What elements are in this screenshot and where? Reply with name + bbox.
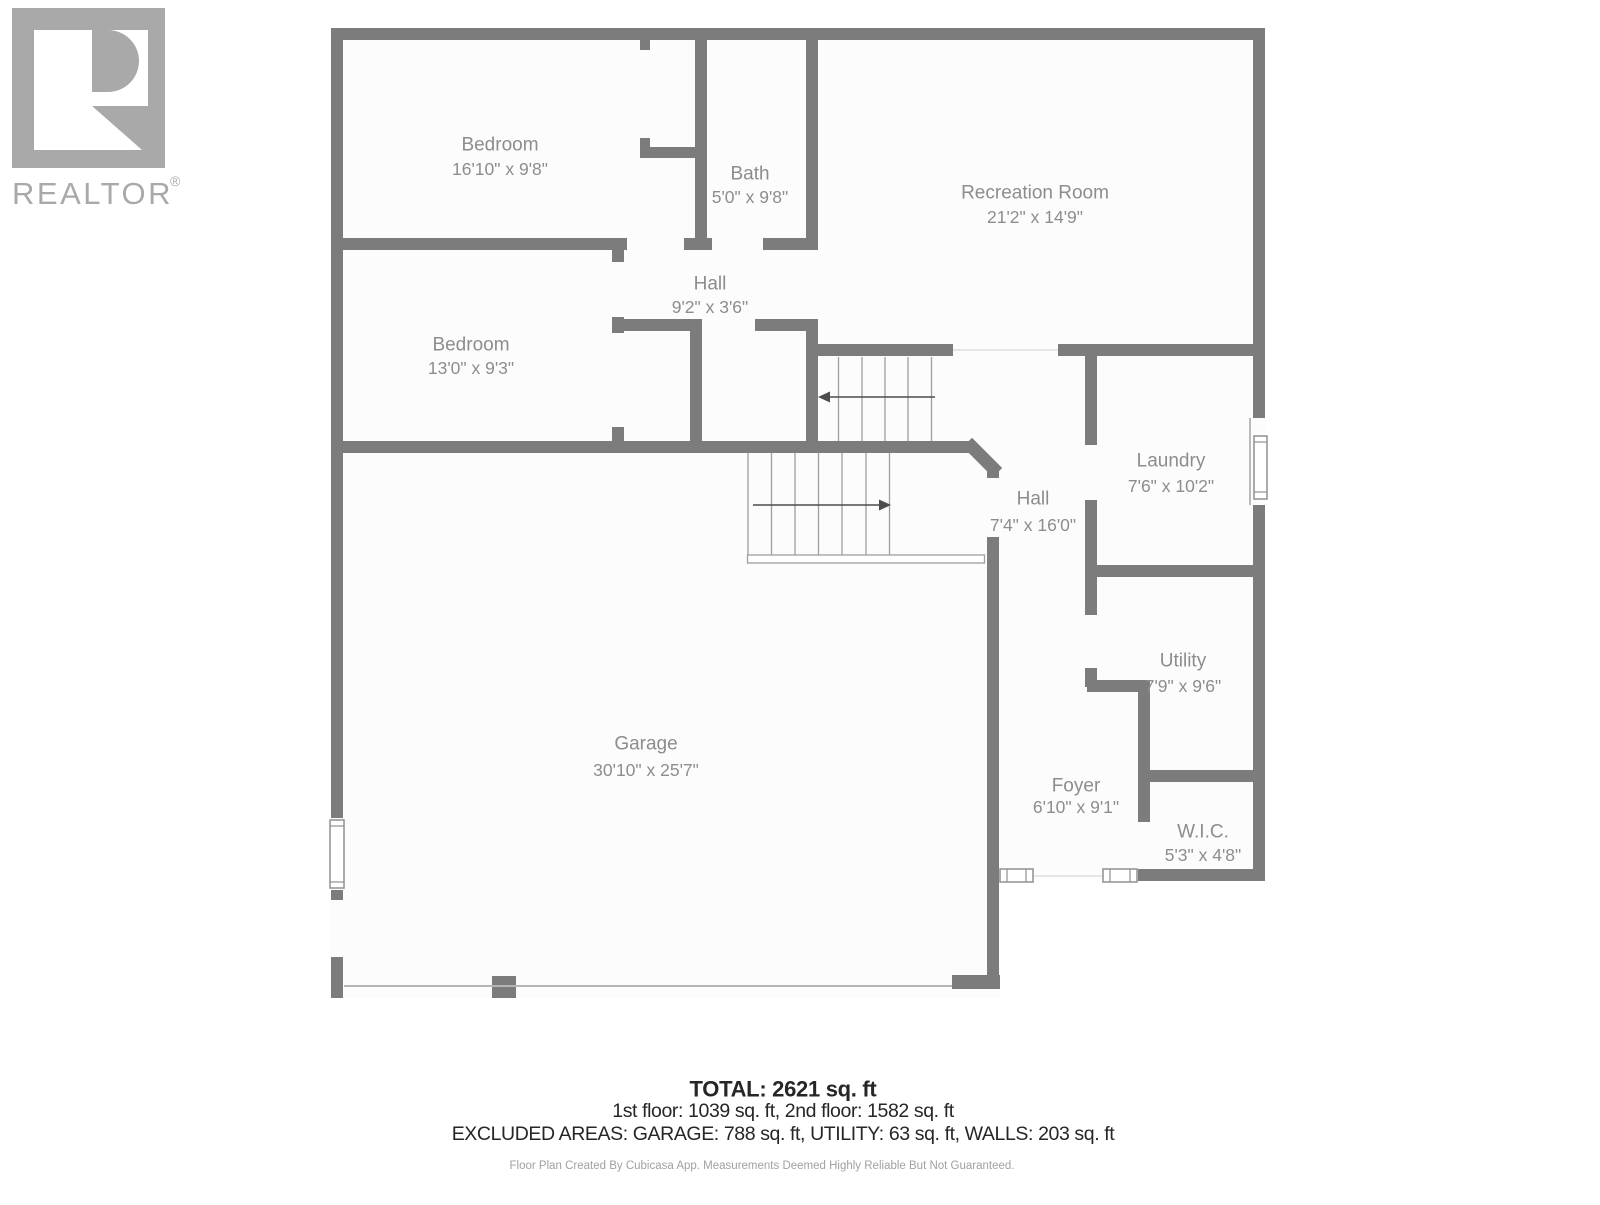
room-name: Bedroom [461, 135, 538, 156]
room-dims: 7'6" x 10'2" [1128, 476, 1214, 496]
room-dims: 7'4" x 16'0" [990, 515, 1076, 535]
foyer-window-right-icon [1103, 869, 1137, 882]
room-name: Hall [1017, 489, 1050, 510]
laundry-window-icon [1254, 436, 1267, 499]
realtor-logo: REALTOR ® [12, 8, 181, 211]
room-name: Recreation Room [961, 183, 1109, 204]
room-name: Foyer [1052, 776, 1101, 797]
room-name: Bath [730, 164, 769, 185]
excluded-areas-text: EXCLUDED AREAS: GARAGE: 788 sq. ft, UTIL… [452, 1123, 1116, 1145]
realtor-logo-text: REALTOR [12, 176, 173, 211]
room-name: Bedroom [432, 335, 509, 356]
room-dims: 9'2" x 3'6" [672, 297, 749, 317]
room-name: Laundry [1137, 451, 1206, 472]
room-name: Garage [614, 734, 677, 755]
room-dims: 13'0" x 9'3" [428, 358, 514, 378]
room-dims: 6'10" x 9'1" [1033, 797, 1119, 817]
total-area-text: TOTAL: 2621 sq. ft [690, 1077, 878, 1102]
registered-trademark-icon: ® [170, 173, 181, 189]
room-name: Hall [694, 274, 727, 295]
room-dims: 30'10" x 25'7" [593, 760, 699, 780]
room-dims: 5'3" x 4'8" [1165, 845, 1242, 865]
floor-plan-canvas: REALTOR ® [0, 0, 1600, 1200]
room-dims: 16'10" x 9'8" [452, 159, 548, 179]
floor-plan-page: REALTOR ® [0, 0, 1600, 1200]
foyer-window-left-icon [1000, 869, 1033, 882]
room-dims: 7'9" x 9'6" [1145, 676, 1222, 696]
area-summary: TOTAL: 2621 sq. ft 1st floor: 1039 sq. f… [452, 1077, 1116, 1146]
stairs-base-edge [748, 555, 985, 563]
room-dims: 21'2" x 14'9" [987, 207, 1083, 227]
disclaimer-text: Floor Plan Created By Cubicasa App. Meas… [510, 1160, 1015, 1172]
floor-areas-text: 1st floor: 1039 sq. ft, 2nd floor: 1582 … [612, 1100, 954, 1122]
room-name: Utility [1160, 651, 1207, 672]
room-dims: 5'0" x 9'8" [712, 187, 789, 207]
room-name: W.I.C. [1177, 822, 1229, 843]
garage-window-icon [330, 820, 344, 888]
